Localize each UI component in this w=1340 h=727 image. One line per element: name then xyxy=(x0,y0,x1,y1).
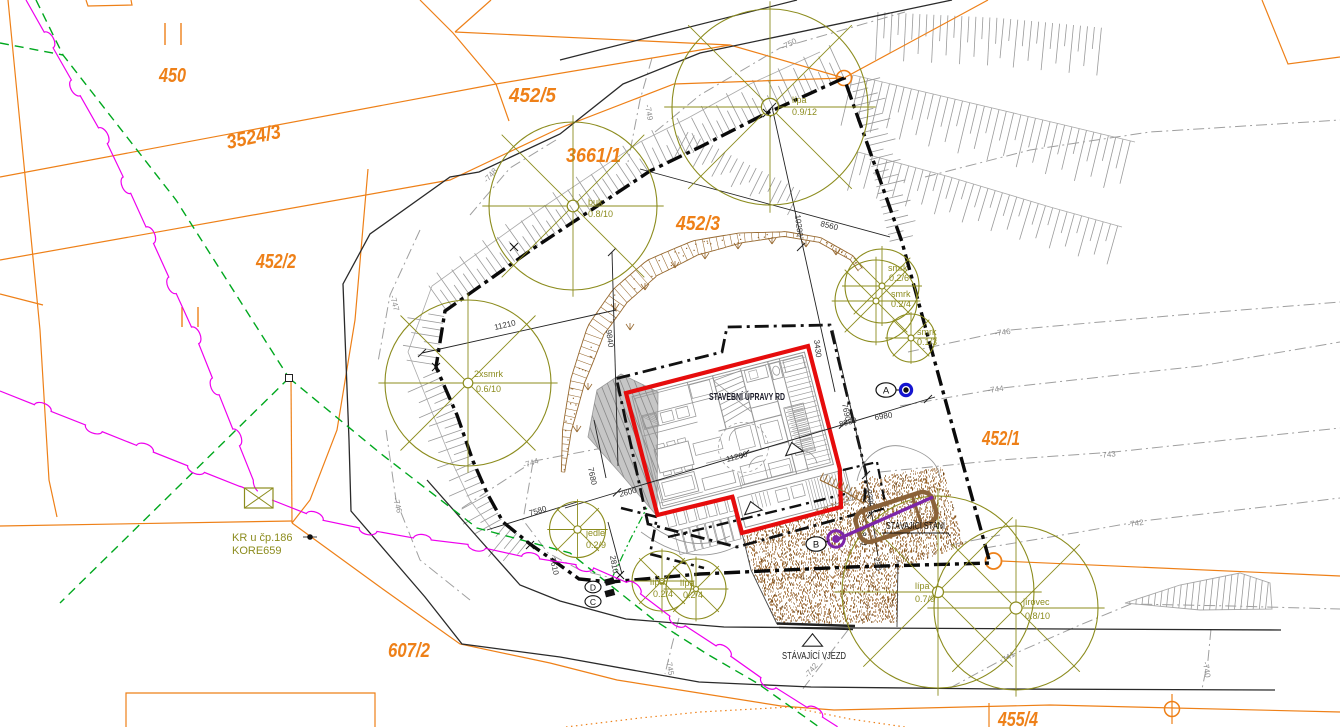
svg-text:STÁVAJÍCÍ STÁNÍ: STÁVAJÍCÍ STÁNÍ xyxy=(886,519,945,532)
svg-text:3661/1: 3661/1 xyxy=(566,145,621,167)
svg-text:lípa: lípa xyxy=(650,577,665,587)
svg-text:455/4: 455/4 xyxy=(997,709,1038,727)
svg-text:452/1: 452/1 xyxy=(981,428,1020,450)
svg-text:STÁVAJÍCÍ VJEZD: STÁVAJÍCÍ VJEZD xyxy=(782,649,846,662)
svg-text:0.8/10: 0.8/10 xyxy=(1025,611,1050,621)
svg-text:D: D xyxy=(590,583,596,593)
svg-text:0.2/4: 0.2/4 xyxy=(891,299,911,309)
svg-text:450: 450 xyxy=(158,65,186,87)
svg-text:452/2: 452/2 xyxy=(255,251,296,273)
svg-text:jedle: jedle xyxy=(585,528,605,538)
svg-text:buk: buk xyxy=(588,197,603,207)
svg-text:B: B xyxy=(813,539,819,550)
svg-text:0.6/10: 0.6/10 xyxy=(476,384,501,394)
svg-text:452/5: 452/5 xyxy=(508,85,557,107)
svg-text:lípa: lípa xyxy=(680,578,695,588)
svg-text:C: C xyxy=(590,597,596,607)
svg-text:jírovec: jírovec xyxy=(1022,597,1050,607)
svg-text:smrk: smrk xyxy=(891,289,911,299)
svg-text:A: A xyxy=(883,385,890,396)
svg-text:0.2/9: 0.2/9 xyxy=(586,540,606,550)
svg-text:0.1/3: 0.1/3 xyxy=(917,337,937,347)
svg-text:0.8/10: 0.8/10 xyxy=(588,209,613,219)
svg-text:STAVEBNÍ ÚPRAVY RD: STAVEBNÍ ÚPRAVY RD xyxy=(709,390,785,403)
svg-text:0.7/9: 0.7/9 xyxy=(915,594,935,604)
svg-text:452/3: 452/3 xyxy=(675,213,720,235)
svg-text:smrk: smrk xyxy=(917,327,937,337)
svg-text:-743: -743 xyxy=(1099,449,1116,460)
svg-text:2xsmrk: 2xsmrk xyxy=(474,369,503,379)
svg-text:lípa: lípa xyxy=(792,95,807,105)
svg-text:0.9/12: 0.9/12 xyxy=(792,107,817,117)
svg-text:KORE659: KORE659 xyxy=(232,545,282,557)
svg-text:0.2/4: 0.2/4 xyxy=(653,589,673,599)
svg-text:KR u čp.186: KR u čp.186 xyxy=(232,532,293,544)
svg-text:0.2/4: 0.2/4 xyxy=(683,590,703,600)
svg-text:lípa: lípa xyxy=(915,581,930,591)
svg-text:607/2: 607/2 xyxy=(388,640,430,662)
